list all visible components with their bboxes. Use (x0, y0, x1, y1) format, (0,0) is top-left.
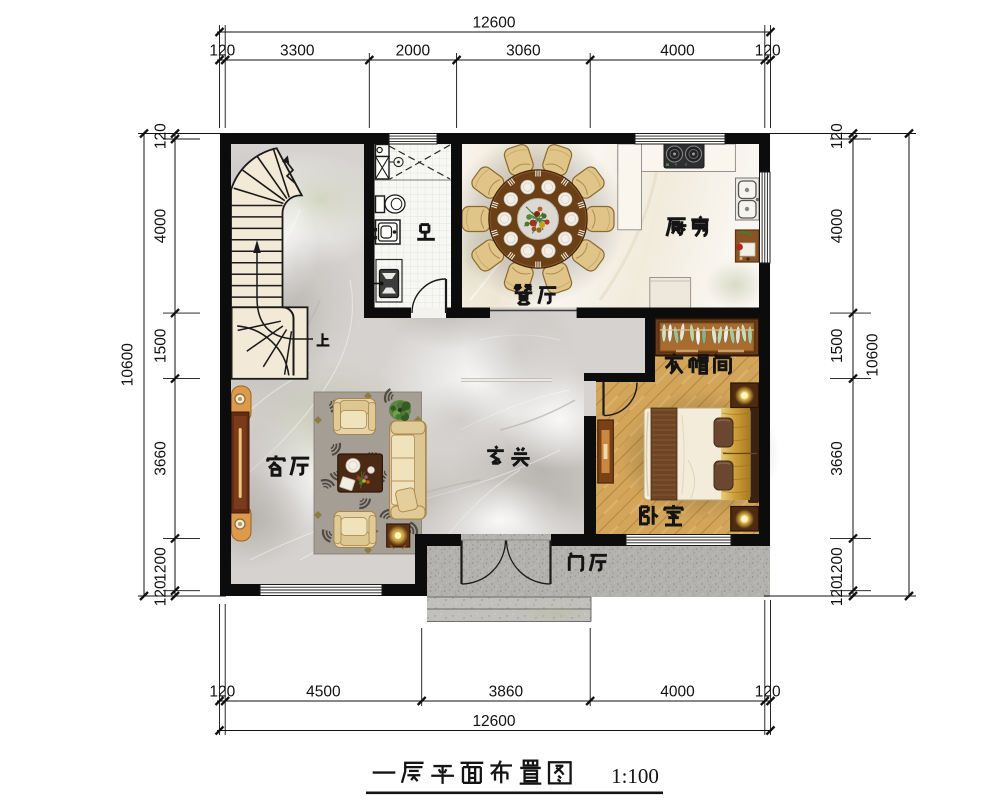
svg-text:4000: 4000 (829, 208, 846, 243)
svg-text:4000: 4000 (153, 208, 170, 243)
svg-text:120: 120 (755, 684, 781, 701)
svg-text:3060: 3060 (506, 43, 541, 60)
svg-text:120: 120 (829, 580, 846, 606)
svg-text:1:100: 1:100 (611, 764, 659, 788)
svg-text:10600: 10600 (865, 333, 882, 376)
svg-text:1500: 1500 (829, 328, 846, 363)
svg-text:4000: 4000 (660, 684, 695, 701)
svg-text:120: 120 (829, 123, 846, 149)
svg-text:120: 120 (755, 43, 781, 60)
svg-text:120: 120 (209, 684, 235, 701)
svg-text:1200: 1200 (829, 547, 846, 582)
svg-text:3860: 3860 (489, 684, 524, 701)
svg-text:4500: 4500 (306, 684, 341, 701)
svg-text:120: 120 (153, 123, 170, 149)
svg-text:120: 120 (209, 43, 235, 60)
svg-text:2000: 2000 (396, 43, 431, 60)
svg-text:1200: 1200 (153, 547, 170, 582)
svg-text:3300: 3300 (280, 43, 315, 60)
svg-text:3660: 3660 (829, 441, 846, 476)
svg-text:12600: 12600 (472, 713, 515, 730)
svg-text:120: 120 (153, 580, 170, 606)
svg-text:10600: 10600 (120, 343, 137, 386)
svg-text:4000: 4000 (660, 43, 695, 60)
svg-text:1500: 1500 (153, 328, 170, 363)
svg-text:3660: 3660 (153, 441, 170, 476)
svg-text:12600: 12600 (472, 15, 515, 32)
